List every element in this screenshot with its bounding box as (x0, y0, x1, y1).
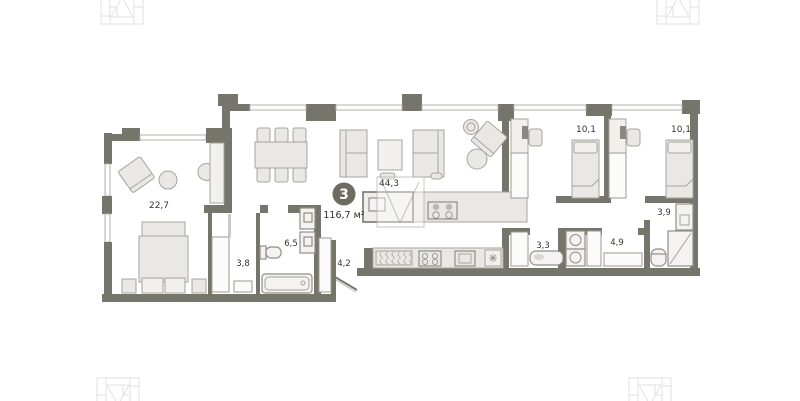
wardrobe (212, 237, 229, 292)
laundry-fixtures (566, 231, 642, 266)
wardrobe (511, 153, 528, 198)
sofa-zone (340, 120, 507, 178)
floor-plan-page: 22,7 44,3 10,1 10,1 3,8 6,5 4,2 3,3 4,9 … (0, 0, 800, 401)
armchair (118, 156, 155, 193)
room-label-bedroom-1: 10,1 (576, 125, 596, 135)
brand-logo-bottom-left (97, 378, 139, 401)
counter-rack (376, 251, 412, 265)
nightstand (192, 279, 206, 293)
shower (668, 231, 693, 266)
coffee-table (378, 140, 402, 170)
shelving (587, 231, 601, 266)
room-label-closet: 3,8 (236, 259, 250, 269)
bathtub (262, 274, 312, 293)
room-label-bathroom-2: 3,3 (536, 241, 550, 251)
washer (566, 231, 585, 249)
nightstand (122, 279, 136, 293)
sink (300, 208, 315, 229)
sink (300, 232, 315, 253)
single-bed (572, 140, 599, 198)
floor-plan: 22,7 44,3 10,1 10,1 3,8 6,5 4,2 3,3 4,9 … (0, 0, 800, 401)
room-label-bedroom-2: 10,1 (671, 125, 691, 135)
toilet (651, 249, 666, 266)
closet-door-leaf (228, 214, 231, 237)
bathroom-fixtures (260, 208, 315, 293)
double-bed (139, 222, 188, 293)
room-label-laundry: 4,9 (610, 238, 624, 248)
sink (676, 204, 693, 230)
toilet (260, 246, 281, 259)
drying-rack (604, 253, 642, 266)
room-label-bathroom: 6,5 (284, 239, 298, 249)
vanity-sink (530, 251, 563, 265)
desk (210, 143, 224, 203)
desk-chair (529, 129, 542, 146)
total-area: 116,7 м² (323, 210, 364, 221)
hall-wardrobe (319, 238, 331, 292)
single-bed (666, 140, 693, 198)
dining-set (255, 128, 307, 182)
sofa (340, 130, 367, 177)
brand-logo-top-right (657, 0, 699, 24)
plan-badge: 3 116,7 м² (323, 183, 364, 222)
brand-logo-bottom-right (629, 378, 671, 401)
room-label-living-kitchen: 44,3 (379, 179, 399, 189)
closet-fittings (212, 214, 252, 292)
brand-logo-top-left (101, 0, 143, 24)
fridge-mark (485, 250, 501, 266)
plant (464, 120, 479, 135)
monitor (620, 126, 626, 139)
round-table (467, 149, 487, 169)
desk-chair (627, 129, 640, 146)
monitor (522, 126, 528, 139)
wardrobe (609, 153, 626, 198)
dryer (566, 249, 585, 266)
room-label-shower-room: 3,9 (657, 208, 671, 218)
stool (431, 173, 442, 179)
room-label-master-bedroom: 22,7 (149, 201, 169, 211)
kitchen-counter (373, 248, 503, 268)
shelf-rack (234, 281, 252, 292)
desk-chair (198, 164, 210, 181)
sofa (413, 130, 444, 177)
dining-table (255, 142, 307, 168)
room-label-hallway: 4,2 (337, 259, 351, 269)
entrance-door (335, 277, 357, 292)
pouf (159, 171, 177, 189)
badge-number: 3 (339, 187, 349, 203)
wardrobe (511, 232, 528, 266)
